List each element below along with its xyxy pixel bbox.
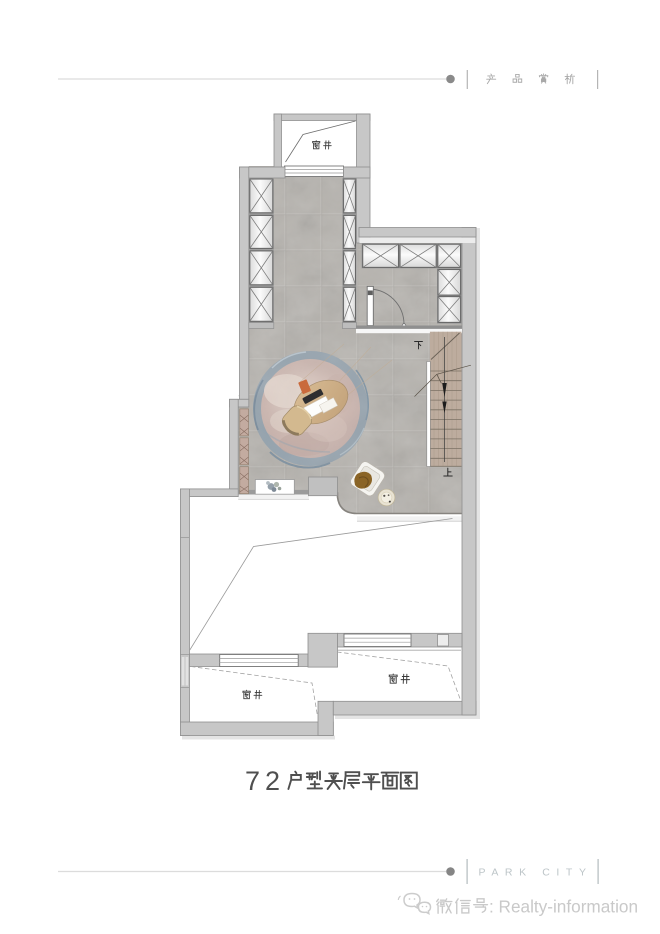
svg-text:: Realty-information: : Realty-information bbox=[489, 897, 638, 917]
svg-text:72: 72 bbox=[245, 766, 285, 796]
svg-text:PARK CITY: PARK CITY bbox=[479, 867, 593, 879]
